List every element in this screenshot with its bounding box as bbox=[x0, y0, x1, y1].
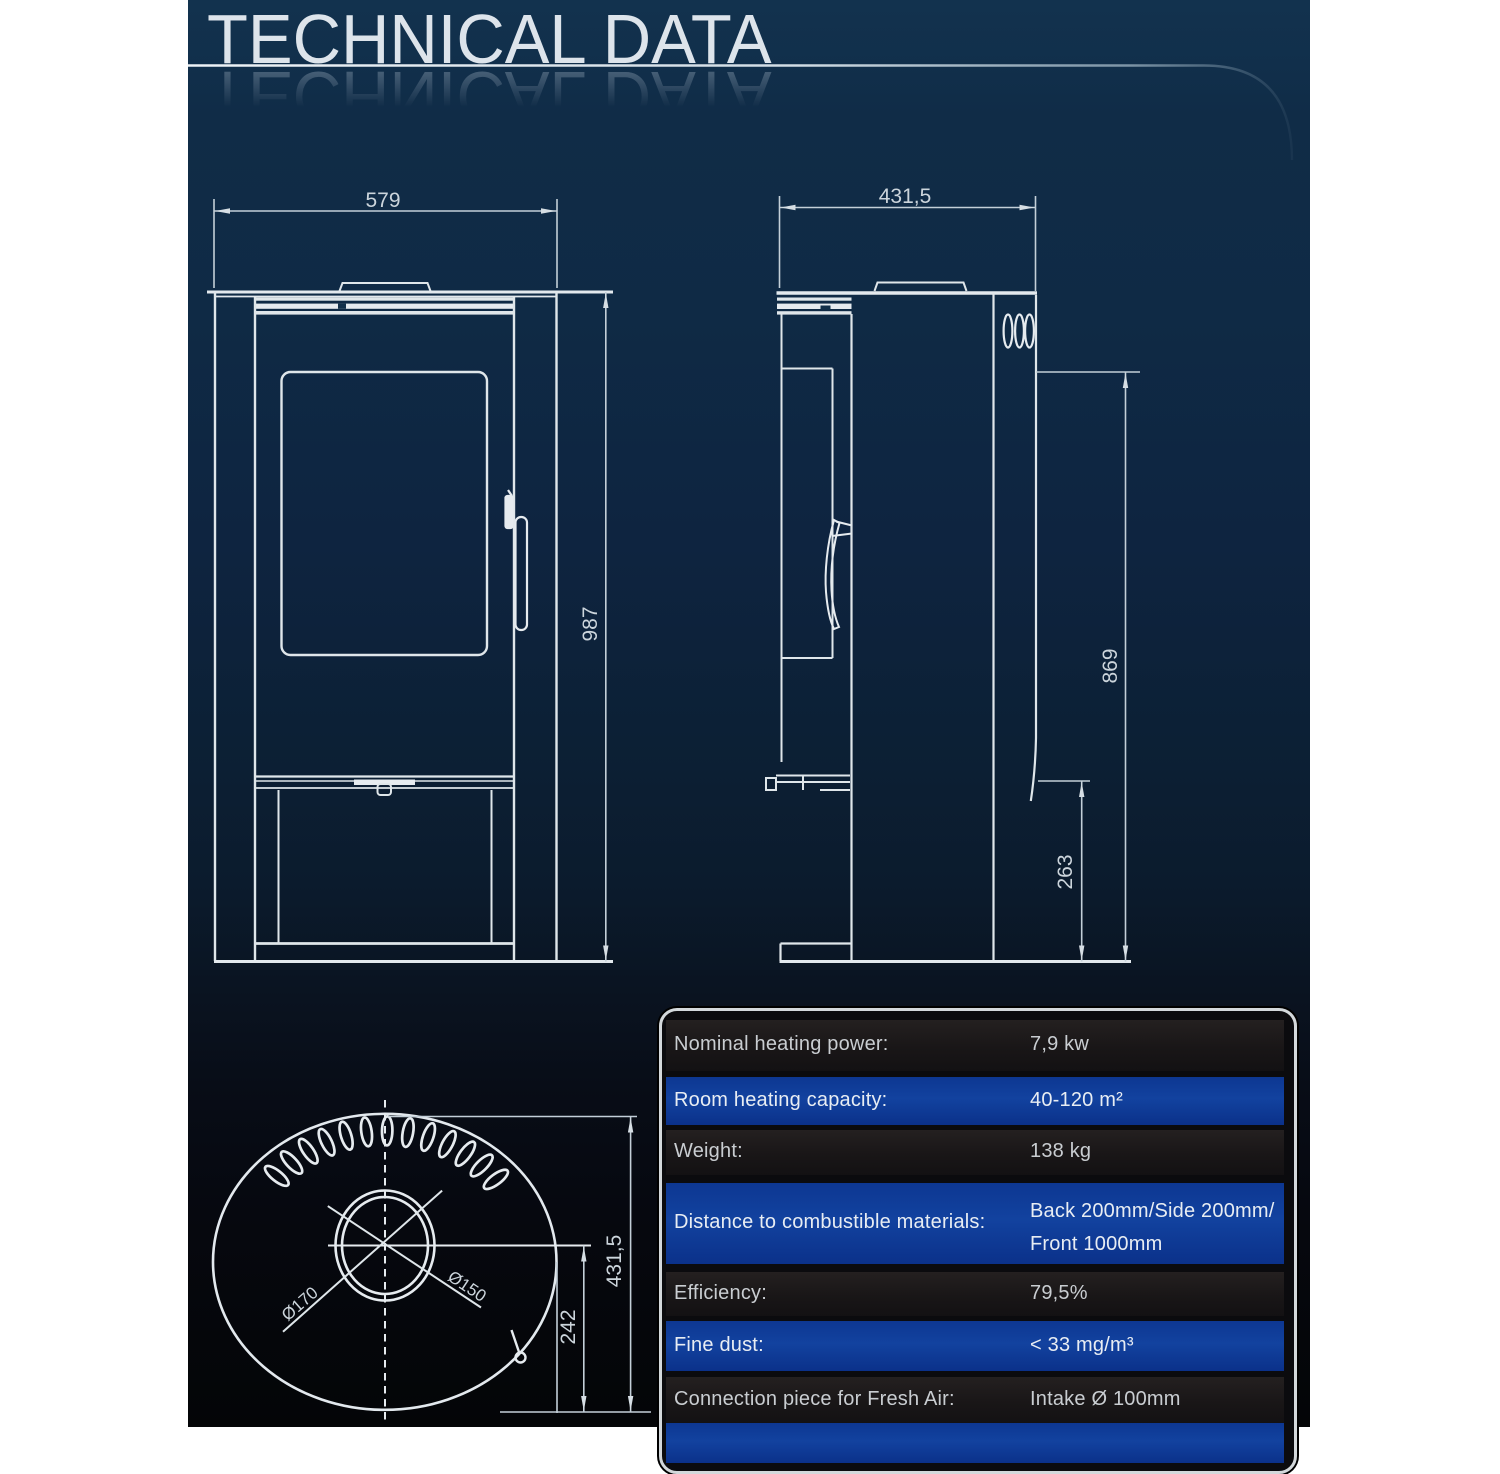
svg-text:431,5: 431,5 bbox=[879, 185, 932, 208]
svg-text:869: 869 bbox=[1099, 648, 1122, 683]
svg-text:Ø150: Ø150 bbox=[444, 1267, 489, 1306]
svg-text:579: 579 bbox=[365, 189, 400, 212]
svg-text:987: 987 bbox=[579, 606, 602, 641]
svg-text:263: 263 bbox=[1054, 854, 1077, 889]
svg-text:431,5: 431,5 bbox=[603, 1235, 626, 1288]
svg-text:242: 242 bbox=[557, 1309, 580, 1344]
